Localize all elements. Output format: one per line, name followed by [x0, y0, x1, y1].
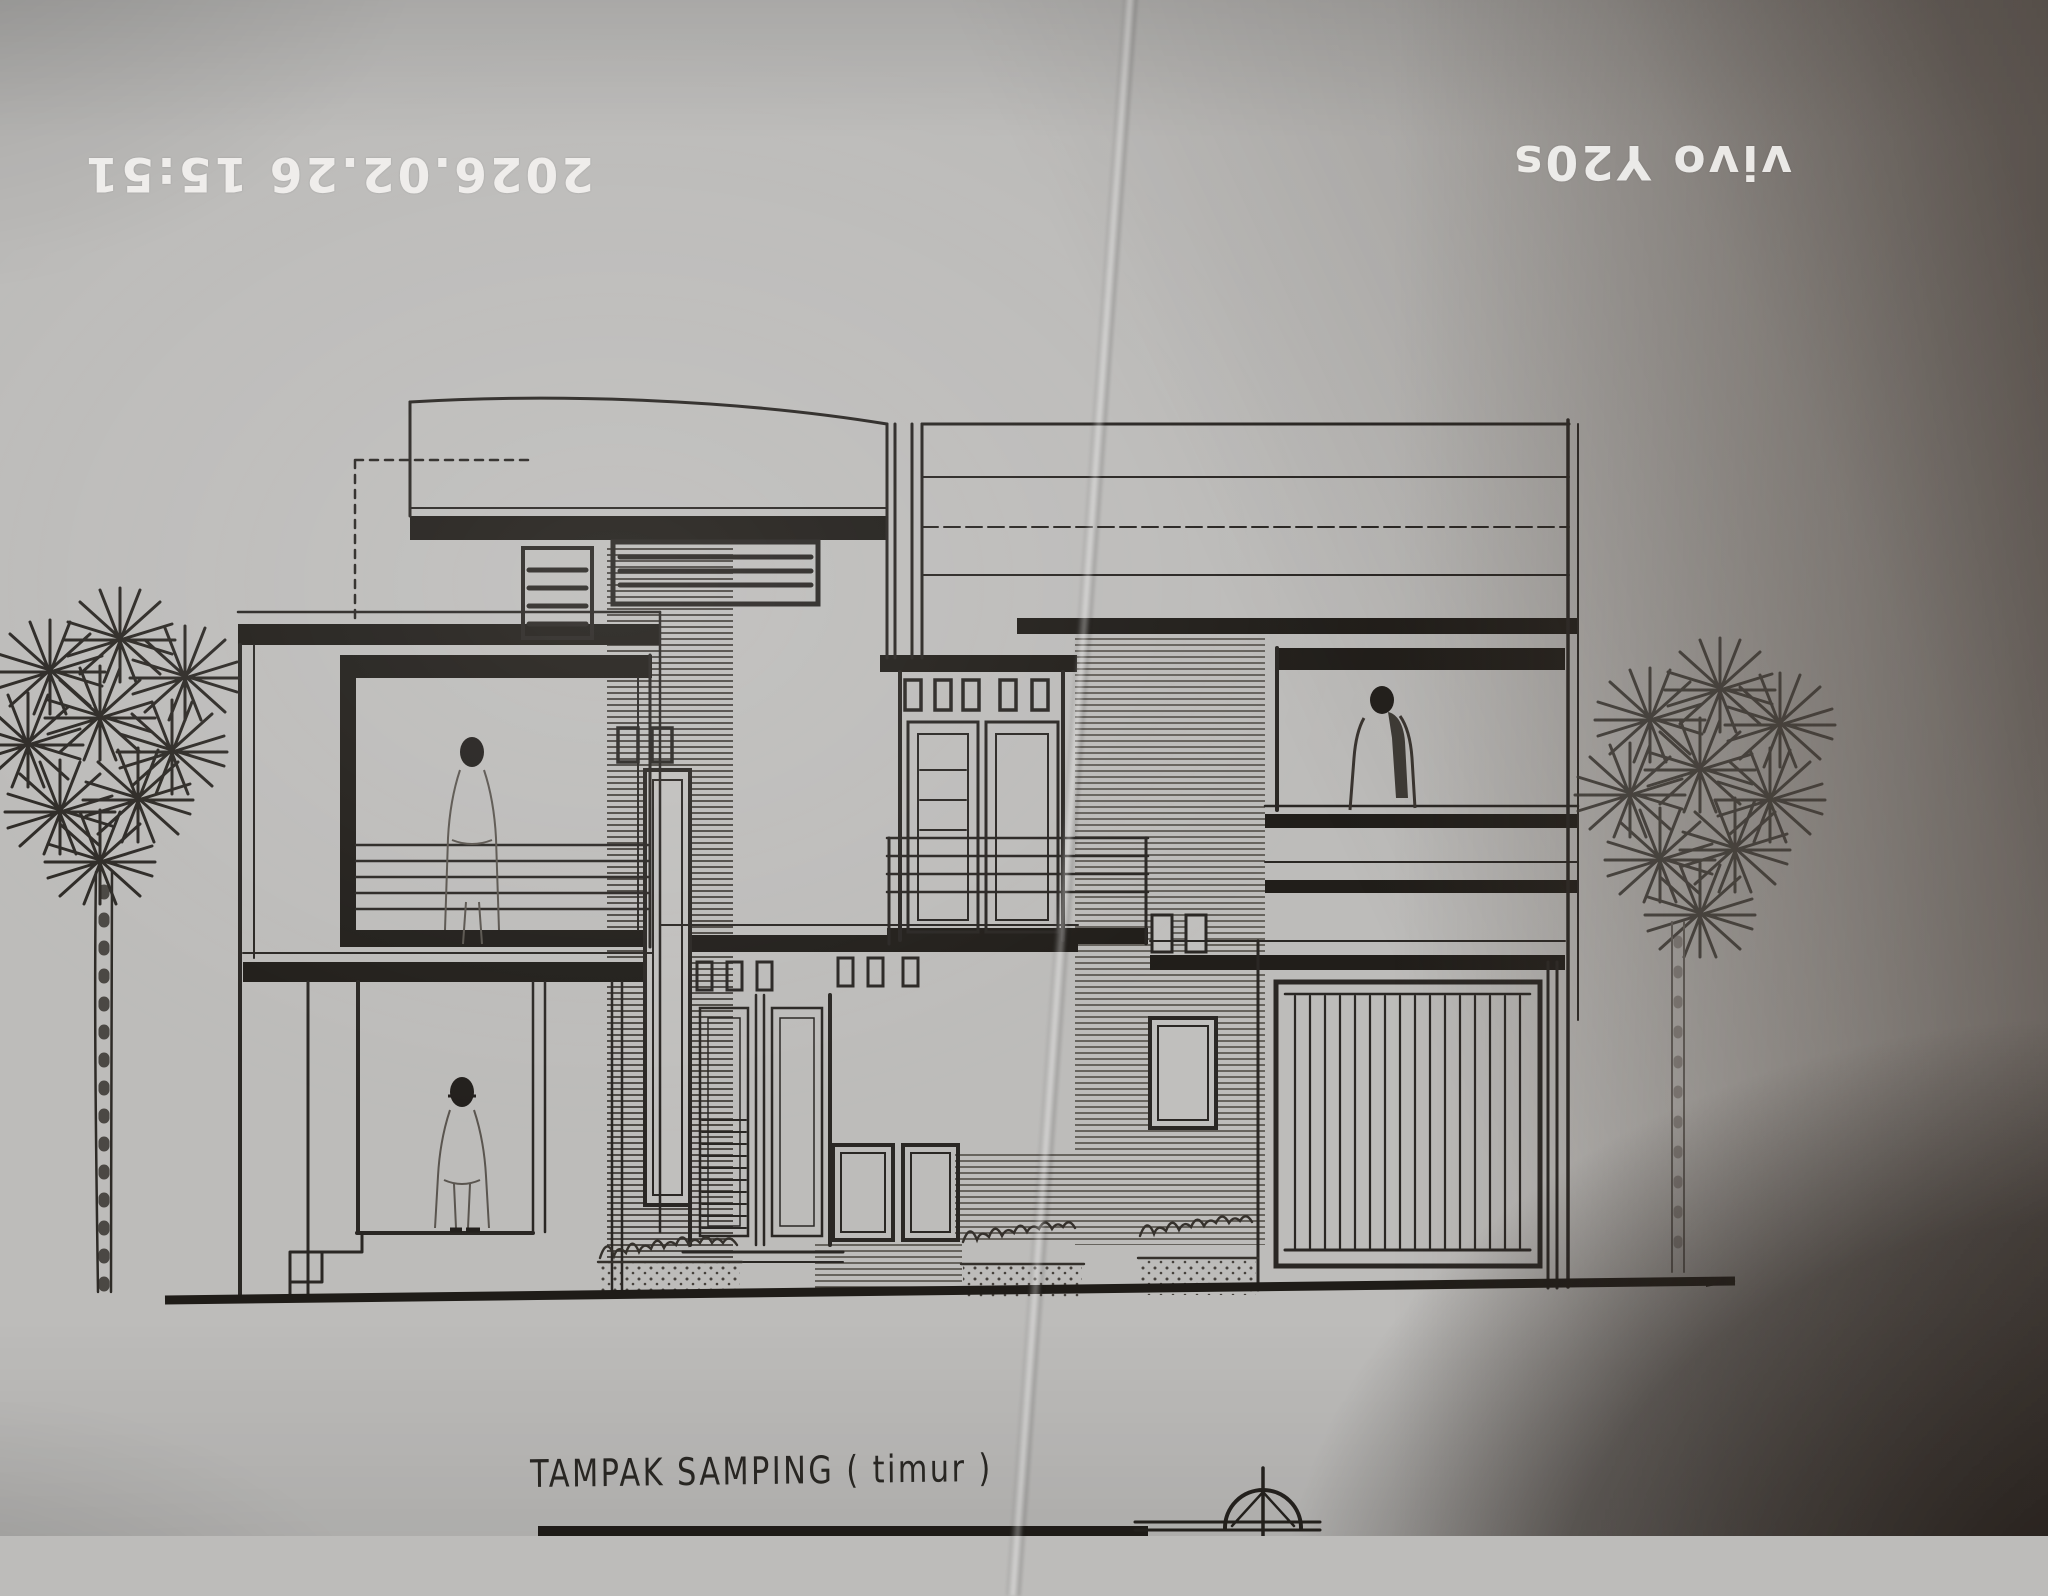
- photo-of-elevation-drawing: { "photo": { "timestamp": "2026.02.26 15…: [0, 0, 2048, 1536]
- photo-stage: TAMPAK SAMPING ( timur ) 2026.02.26 15:5…: [0, 0, 2048, 1536]
- bottom-right-corner-shadow: [0, 0, 2048, 1536]
- vivo-watermark: vivo Y20s: [1342, 134, 1792, 189]
- camera-timestamp: 2026.02.26 15:51: [148, 146, 594, 201]
